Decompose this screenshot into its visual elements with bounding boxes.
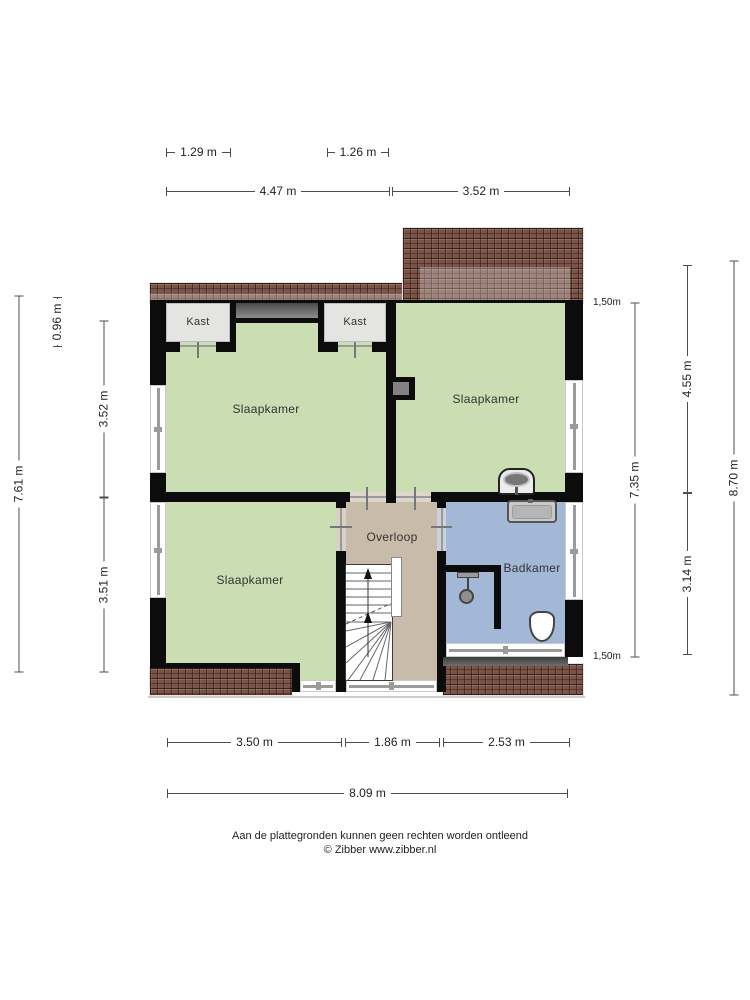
footer: Aan de plattegronden kunnen geen rechten… <box>125 830 635 858</box>
kast2-door-stub-right <box>372 342 386 352</box>
wall-kast1-right <box>230 303 236 352</box>
door-badkamer-line <box>441 508 443 551</box>
door-slaapkamer-top-right-tick <box>414 487 416 510</box>
dim-bottom-3: 2.53 m <box>443 735 570 749</box>
window-left-lower <box>150 502 166 598</box>
ground-line <box>148 696 585 698</box>
dim-left-total: 7.61 m <box>11 296 25 673</box>
dormer-recess-wall <box>236 318 318 323</box>
window-bottom-bedroom <box>300 680 336 692</box>
window-badkamer <box>446 643 565 657</box>
shower-icon-head <box>459 589 474 604</box>
roof-highlight-top-right <box>420 267 570 303</box>
window-right-upper <box>565 380 583 473</box>
wall-divider-bedrooms <box>386 303 396 503</box>
label-overloop: Overloop <box>366 530 417 544</box>
roof-strip-bottom-left <box>150 668 292 695</box>
label-kast-2: Kast <box>343 316 366 328</box>
wall-stairwell-top <box>336 492 346 508</box>
dim-right-455: 4.55 m <box>680 265 694 493</box>
dim-right-314: 3.14 m <box>680 493 694 655</box>
sink-bedroom-faucet <box>515 487 518 495</box>
wall-bottom-left <box>150 663 300 668</box>
dim-top-segment-1: 1.29 m <box>166 145 231 159</box>
floorplan-page: { "rooms": [ {"label": "Kast"}, {"label"… <box>0 0 750 1000</box>
stairs-handrail <box>391 557 402 617</box>
door-slaapkamer-top-left-line <box>350 496 386 498</box>
label-slaapkamer-top-left: Slaapkamer <box>232 402 299 416</box>
wall-bottom-stub <box>292 663 300 692</box>
wall-top <box>150 300 583 303</box>
footer-copyright: © Zibber www.zibber.nl <box>125 844 635 858</box>
wall-mid-left <box>166 492 350 502</box>
kast1-door-stub-left <box>166 342 180 352</box>
height-marker-top: 1,50m <box>593 297 621 308</box>
badkamer-roof-edge <box>443 657 568 666</box>
window-bottom-stairwell <box>346 680 437 692</box>
wall-stairwell-bottom <box>336 551 346 692</box>
dim-bottom-2: 1.86 m <box>345 735 440 749</box>
label-kast-1: Kast <box>186 316 209 328</box>
label-slaapkamer-bottom: Slaapkamer <box>216 573 283 587</box>
wall-left <box>150 303 166 668</box>
kast2-door-stub-left <box>324 342 338 352</box>
door-slaapkamer-top-left-tick <box>366 487 368 510</box>
dim-left-352: 3.52 m <box>96 320 110 497</box>
kast1-door-stub-right <box>216 342 230 352</box>
wall-badkamer-bottom <box>437 551 446 692</box>
window-left-upper <box>150 385 166 473</box>
dormer-recess <box>236 303 318 318</box>
door-badkamer-tick <box>431 526 452 528</box>
sink-badkamer-faucet <box>528 499 533 503</box>
wall-badkamer-top <box>437 492 446 508</box>
chimney-flue <box>393 382 409 395</box>
dim-bottom-total: 8.09 m <box>167 786 568 800</box>
label-slaapkamer-top-right: Slaapkamer <box>452 392 519 406</box>
door-slaapkamer-bottom-line <box>340 508 342 551</box>
kast2-door-tick <box>354 342 356 358</box>
wall-shower-horizontal <box>446 565 501 572</box>
door-slaapkamer-bottom-tick <box>330 526 352 528</box>
stairs <box>346 565 392 680</box>
sink-bedroom-basin <box>503 472 530 487</box>
stairs-arrow-up-2 <box>364 612 372 623</box>
height-marker-bottom: 1,50m <box>593 651 621 662</box>
wall-right <box>565 303 583 657</box>
kast1-door-tick <box>197 342 199 358</box>
roof-strip-bottom-right <box>443 664 583 695</box>
dim-bottom-1: 3.50 m <box>167 735 342 749</box>
dim-top-2: 3.52 m <box>392 184 570 198</box>
sink-badkamer-basin <box>512 505 552 519</box>
room-slaapkamer-bottom-extension <box>300 663 336 680</box>
dim-top-1: 4.47 m <box>166 184 390 198</box>
wall-shower-vertical <box>494 565 501 629</box>
footer-disclaimer: Aan de plattegronden kunnen geen rechten… <box>125 830 635 844</box>
label-badkamer: Badkamer <box>503 561 560 575</box>
dim-left-096: 0.96 m <box>50 297 64 347</box>
window-right-lower <box>565 502 583 600</box>
dim-right-total: 8.70 m <box>726 260 740 695</box>
dim-top-segment-2: 1.26 m <box>327 145 389 159</box>
dim-right-inner: 7.35 m <box>627 302 641 657</box>
dim-left-351: 3.51 m <box>96 497 110 672</box>
